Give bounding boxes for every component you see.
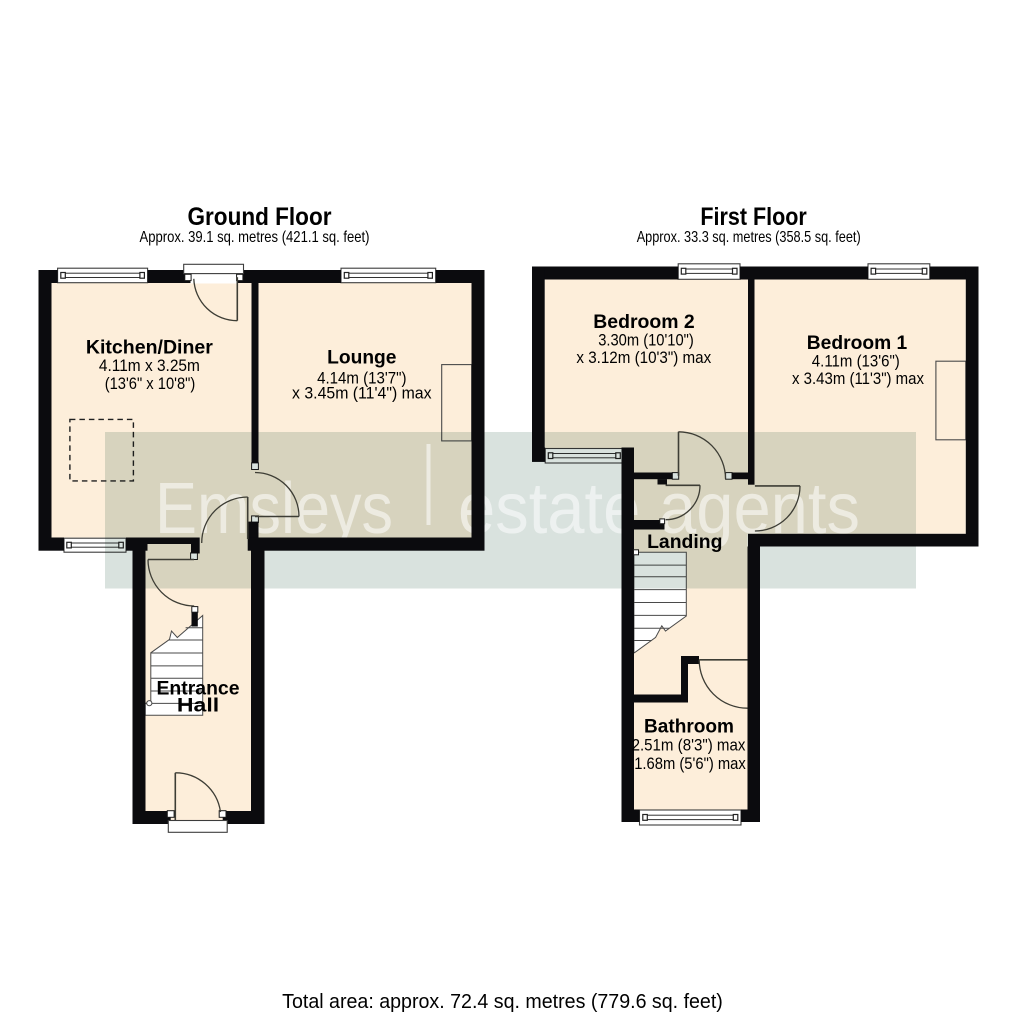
svg-text:Emsleys: Emsleys <box>155 469 393 549</box>
svg-text:x 3.12m (10'3") max: x 3.12m (10'3") max <box>576 349 711 367</box>
svg-text:3.30m (10'10"): 3.30m (10'10") <box>598 332 694 350</box>
svg-text:Bathroom: Bathroom <box>644 717 734 738</box>
svg-text:First Floor: First Floor <box>700 203 807 231</box>
svg-text:Kitchen/Diner: Kitchen/Diner <box>86 338 214 359</box>
svg-text:x 3.45m (11'4") max: x 3.45m (11'4") max <box>292 385 432 403</box>
svg-text:(13'6" x 10'8"): (13'6" x 10'8") <box>105 375 196 393</box>
svg-text:Landing: Landing <box>647 532 722 553</box>
svg-text:Approx. 39.1 sq. metres (421.1: Approx. 39.1 sq. metres (421.1 sq. feet) <box>140 229 370 246</box>
svg-text:Approx. 33.3 sq. metres (358.5: Approx. 33.3 sq. metres (358.5 sq. feet) <box>637 229 861 246</box>
svg-text:Bedroom 2: Bedroom 2 <box>593 312 695 333</box>
svg-text:1.68m (5'6") max: 1.68m (5'6") max <box>634 755 746 773</box>
svg-text:4.11m (13'6"): 4.11m (13'6") <box>812 353 900 371</box>
svg-text:x 3.43m (11'3") max: x 3.43m (11'3") max <box>792 370 925 388</box>
svg-text:2.51m (8'3") max: 2.51m (8'3") max <box>632 737 746 755</box>
svg-text:Hall: Hall <box>177 696 219 717</box>
svg-text:Lounge: Lounge <box>327 348 396 369</box>
svg-text:Total area: approx. 72.4 sq. m: Total area: approx. 72.4 sq. metres (779… <box>282 991 723 1013</box>
svg-text:Bedroom 1: Bedroom 1 <box>807 333 908 354</box>
svg-text:4.11m x 3.25m: 4.11m x 3.25m <box>99 357 200 375</box>
svg-text:Ground Floor: Ground Floor <box>188 203 332 231</box>
